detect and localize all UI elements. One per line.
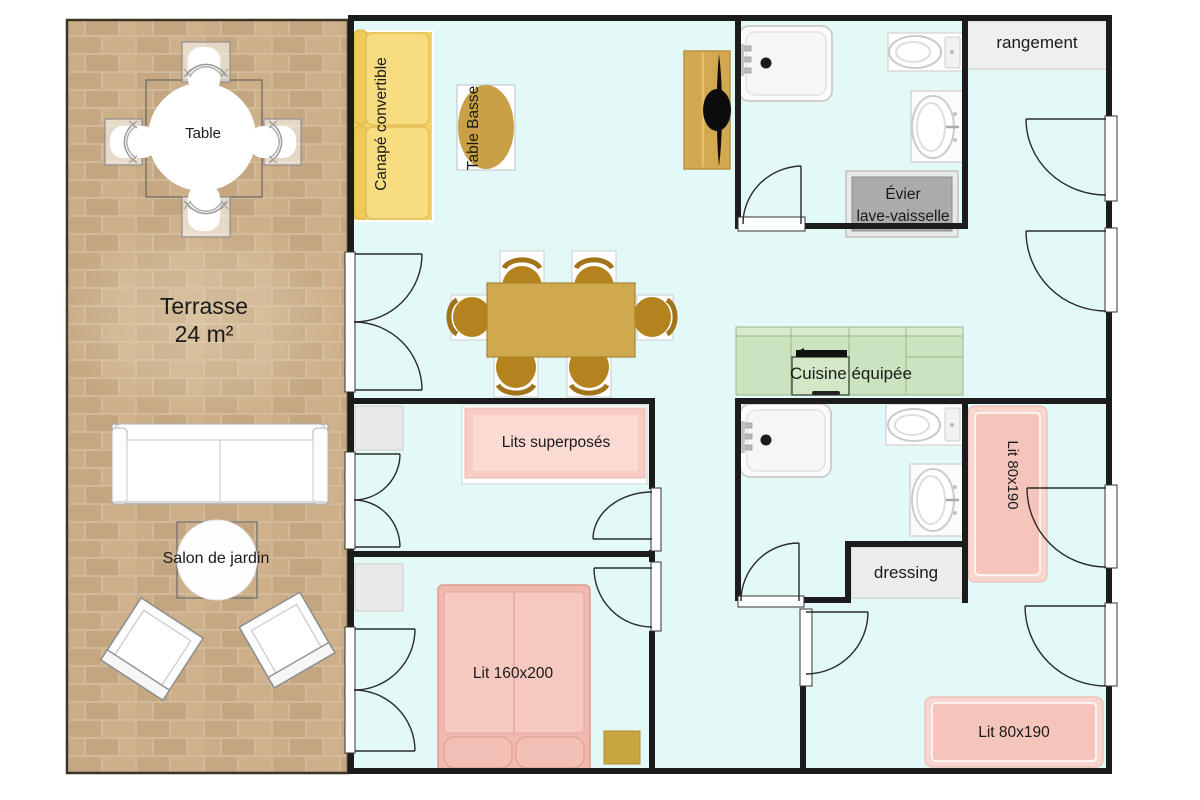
svg-text:rangement: rangement bbox=[996, 33, 1078, 52]
svg-text:Évier: Évier bbox=[885, 186, 920, 203]
svg-text:Lit 160x200: Lit 160x200 bbox=[473, 665, 554, 682]
svg-text:Lit 80x190: Lit 80x190 bbox=[978, 724, 1050, 741]
svg-text:Lits superposés: Lits superposés bbox=[502, 434, 611, 451]
svg-text:Salon de jardin: Salon de jardin bbox=[163, 550, 270, 567]
svg-text:Table: Table bbox=[185, 125, 221, 142]
svg-text:dressing: dressing bbox=[874, 563, 938, 582]
svg-text:Lit 80x190: Lit 80x190 bbox=[1004, 440, 1021, 509]
svg-text:Cuisine équipée: Cuisine équipée bbox=[790, 364, 912, 383]
svg-text:Table Basse: Table Basse bbox=[465, 86, 482, 170]
svg-text:Terrasse: Terrasse bbox=[160, 293, 248, 319]
svg-text:24 m²: 24 m² bbox=[175, 321, 234, 347]
svg-text:lave-vaisselle: lave-vaisselle bbox=[856, 208, 949, 225]
svg-text:Canapé convertible: Canapé convertible bbox=[373, 57, 390, 191]
